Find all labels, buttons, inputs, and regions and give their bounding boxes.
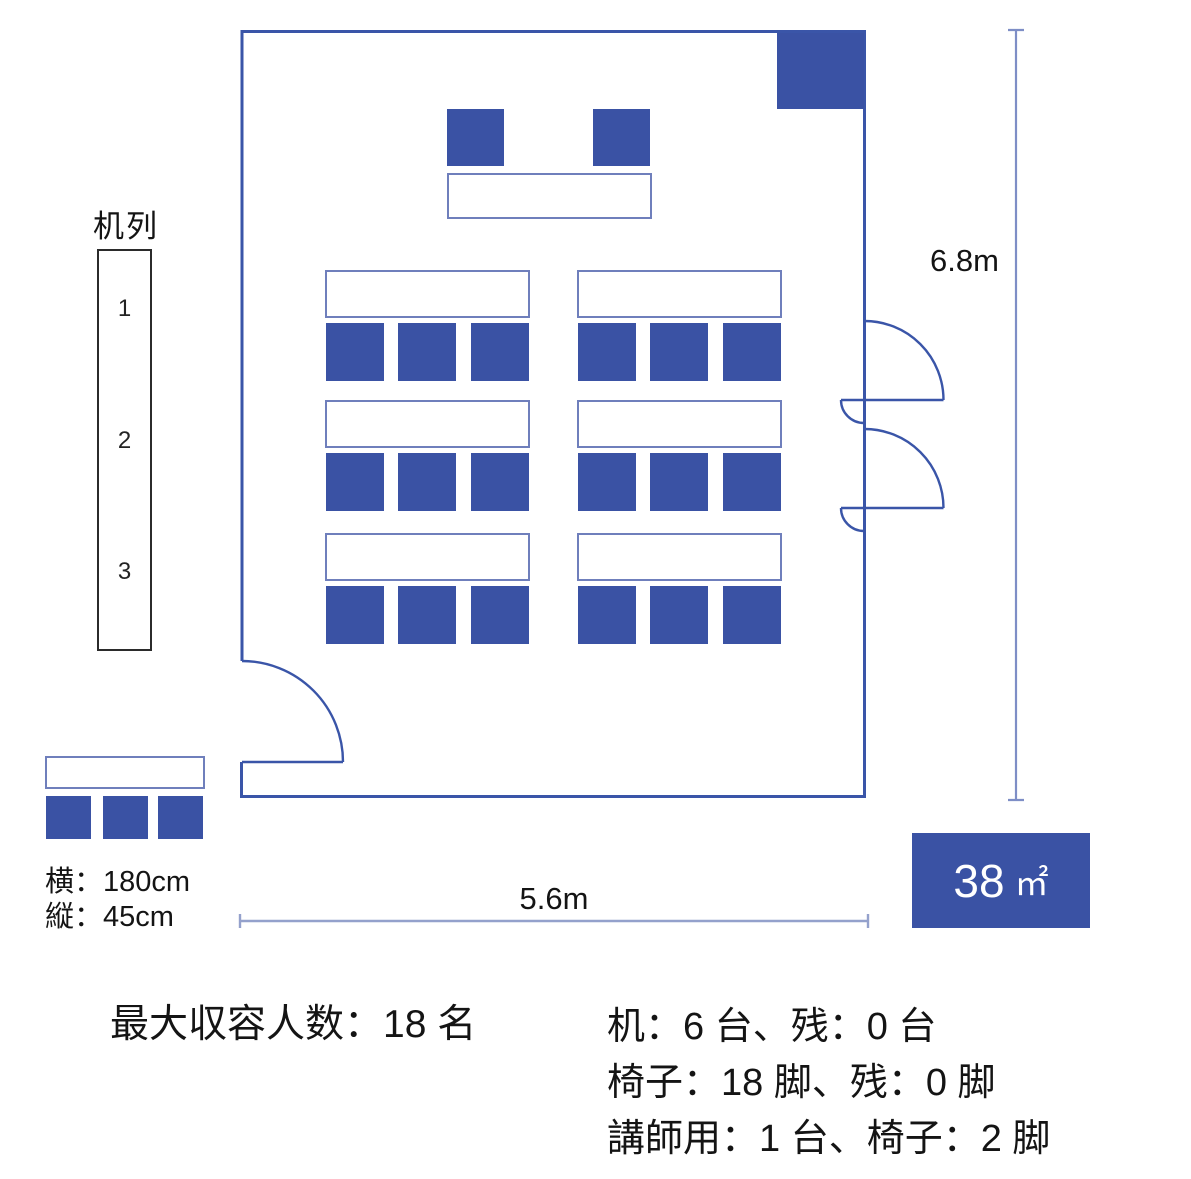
chair: [650, 323, 708, 381]
chair: [578, 586, 636, 644]
desk-count-text: 机：6 台、残：0 台: [607, 995, 936, 1050]
chair: [398, 453, 456, 511]
sample-chair: [103, 796, 148, 839]
desk-group: [577, 400, 782, 511]
chair: [578, 453, 636, 511]
pillar: [777, 33, 864, 109]
area-unit: ㎡: [1015, 856, 1049, 905]
lecturer-desk-group: [447, 109, 652, 219]
chair: [578, 323, 636, 381]
lecturer-count-text: 講師用：1 台、椅子：2 脚: [607, 1107, 1050, 1162]
desk-group: [325, 533, 530, 644]
desk-group: [577, 270, 782, 381]
desk-group: [325, 270, 530, 381]
desk: [325, 400, 530, 448]
chair: [723, 586, 781, 644]
desk-grid: [325, 270, 783, 645]
chair: [326, 453, 384, 511]
height-dimension-line: [1008, 30, 1024, 800]
chair: [398, 586, 456, 644]
sample-chair: [158, 796, 203, 839]
desk: [577, 270, 782, 318]
chair: [650, 453, 708, 511]
legend-row-number: 1: [99, 295, 150, 323]
desk-group: [325, 400, 530, 511]
seminar-room-floorplan: 机列 1 2 3 横：180cm 縦：45cm 38 ㎡ 6.8m 5.6m 最…: [0, 0, 1191, 1179]
chair: [650, 586, 708, 644]
desk-depth-label: 縦：45cm: [45, 893, 174, 935]
entrance-door-arc: [242, 661, 343, 762]
legend-row-number: 2: [99, 427, 150, 455]
capacity-text: 最大収容人数：18 名: [110, 993, 476, 1049]
sample-chair: [46, 796, 91, 839]
chair-count-text: 椅子：18 脚、残：0 脚: [607, 1051, 996, 1106]
height-dimension-label: 6.8m: [930, 243, 999, 279]
legend-title: 机列: [93, 201, 159, 246]
area-value: 38: [953, 854, 1004, 908]
desk: [325, 533, 530, 581]
chair: [326, 323, 384, 381]
width-dimension-label: 5.6m: [459, 881, 649, 917]
chair: [471, 323, 529, 381]
chair: [723, 323, 781, 381]
desk-row-legend: 1 2 3: [97, 249, 152, 651]
chair: [326, 586, 384, 644]
lecturer-chair: [593, 109, 650, 166]
desk-size-sample: [45, 756, 205, 846]
lecturer-desk: [447, 173, 652, 219]
desk-group: [577, 533, 782, 644]
desk: [577, 400, 782, 448]
chair: [471, 453, 529, 511]
area-badge: 38 ㎡: [912, 833, 1090, 928]
chair: [723, 453, 781, 511]
right-door-upper: [841, 321, 944, 423]
legend-row-number: 3: [99, 558, 150, 586]
chair: [398, 323, 456, 381]
sample-desk: [45, 756, 205, 789]
chair: [471, 586, 529, 644]
desk: [577, 533, 782, 581]
right-door-lower: [841, 429, 944, 531]
desk: [325, 270, 530, 318]
lecturer-chair: [447, 109, 504, 166]
